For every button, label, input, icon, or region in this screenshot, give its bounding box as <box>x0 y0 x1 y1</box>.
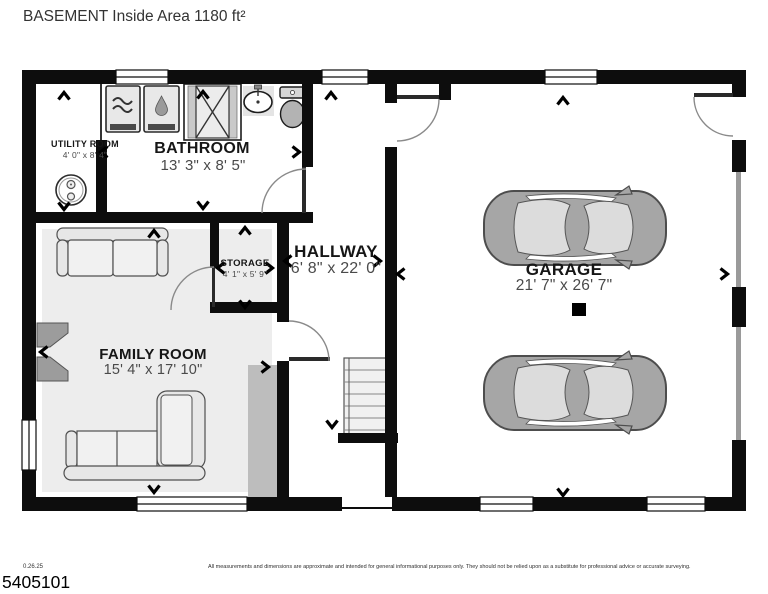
page-title: BASEMENT Inside Area 1180 ft² <box>23 8 246 26</box>
stairs-icon <box>344 358 392 442</box>
toilet-icon <box>280 87 305 128</box>
room-label-hallway: HALLWAY <box>294 242 378 262</box>
room-dims-storage: 4' 1" x 5' 9" <box>223 269 268 279</box>
dryer-icon <box>144 86 179 132</box>
shower-icon <box>184 84 241 140</box>
room-dims-family-room: 15' 4" x 17' 10" <box>104 362 203 378</box>
footer-disclaimer: All measurements and dimensions are appr… <box>208 564 756 570</box>
sink-icon <box>243 85 274 116</box>
room-dims-hallway: 6' 8" x 22' 0" <box>291 260 382 278</box>
room-label-family-room: FAMILY ROOM <box>99 346 206 363</box>
room-dims-garage: 21' 7" x 26' 7" <box>516 277 613 295</box>
support-post-icon <box>572 303 586 316</box>
wall-opening <box>342 497 392 511</box>
room-label-bathroom: BATHROOM <box>154 140 249 158</box>
room-label-utility: UTILITY ROOM <box>51 139 119 149</box>
washer-icon <box>106 86 140 132</box>
room-dims-utility: 4' 0" x 8' 4" <box>63 150 108 160</box>
room-dims-bathroom: 13' 3" x 8' 5" <box>160 157 245 174</box>
footer-date: 0.26.25 <box>23 564 43 570</box>
room-label-storage: STORAGE <box>221 258 270 269</box>
car-icon <box>484 351 666 434</box>
floor-plan <box>0 0 768 594</box>
water-heater-icon <box>56 175 86 205</box>
footer-listing-id: 5405101 <box>2 572 70 593</box>
chimney <box>248 365 277 497</box>
car-icon <box>484 186 666 269</box>
